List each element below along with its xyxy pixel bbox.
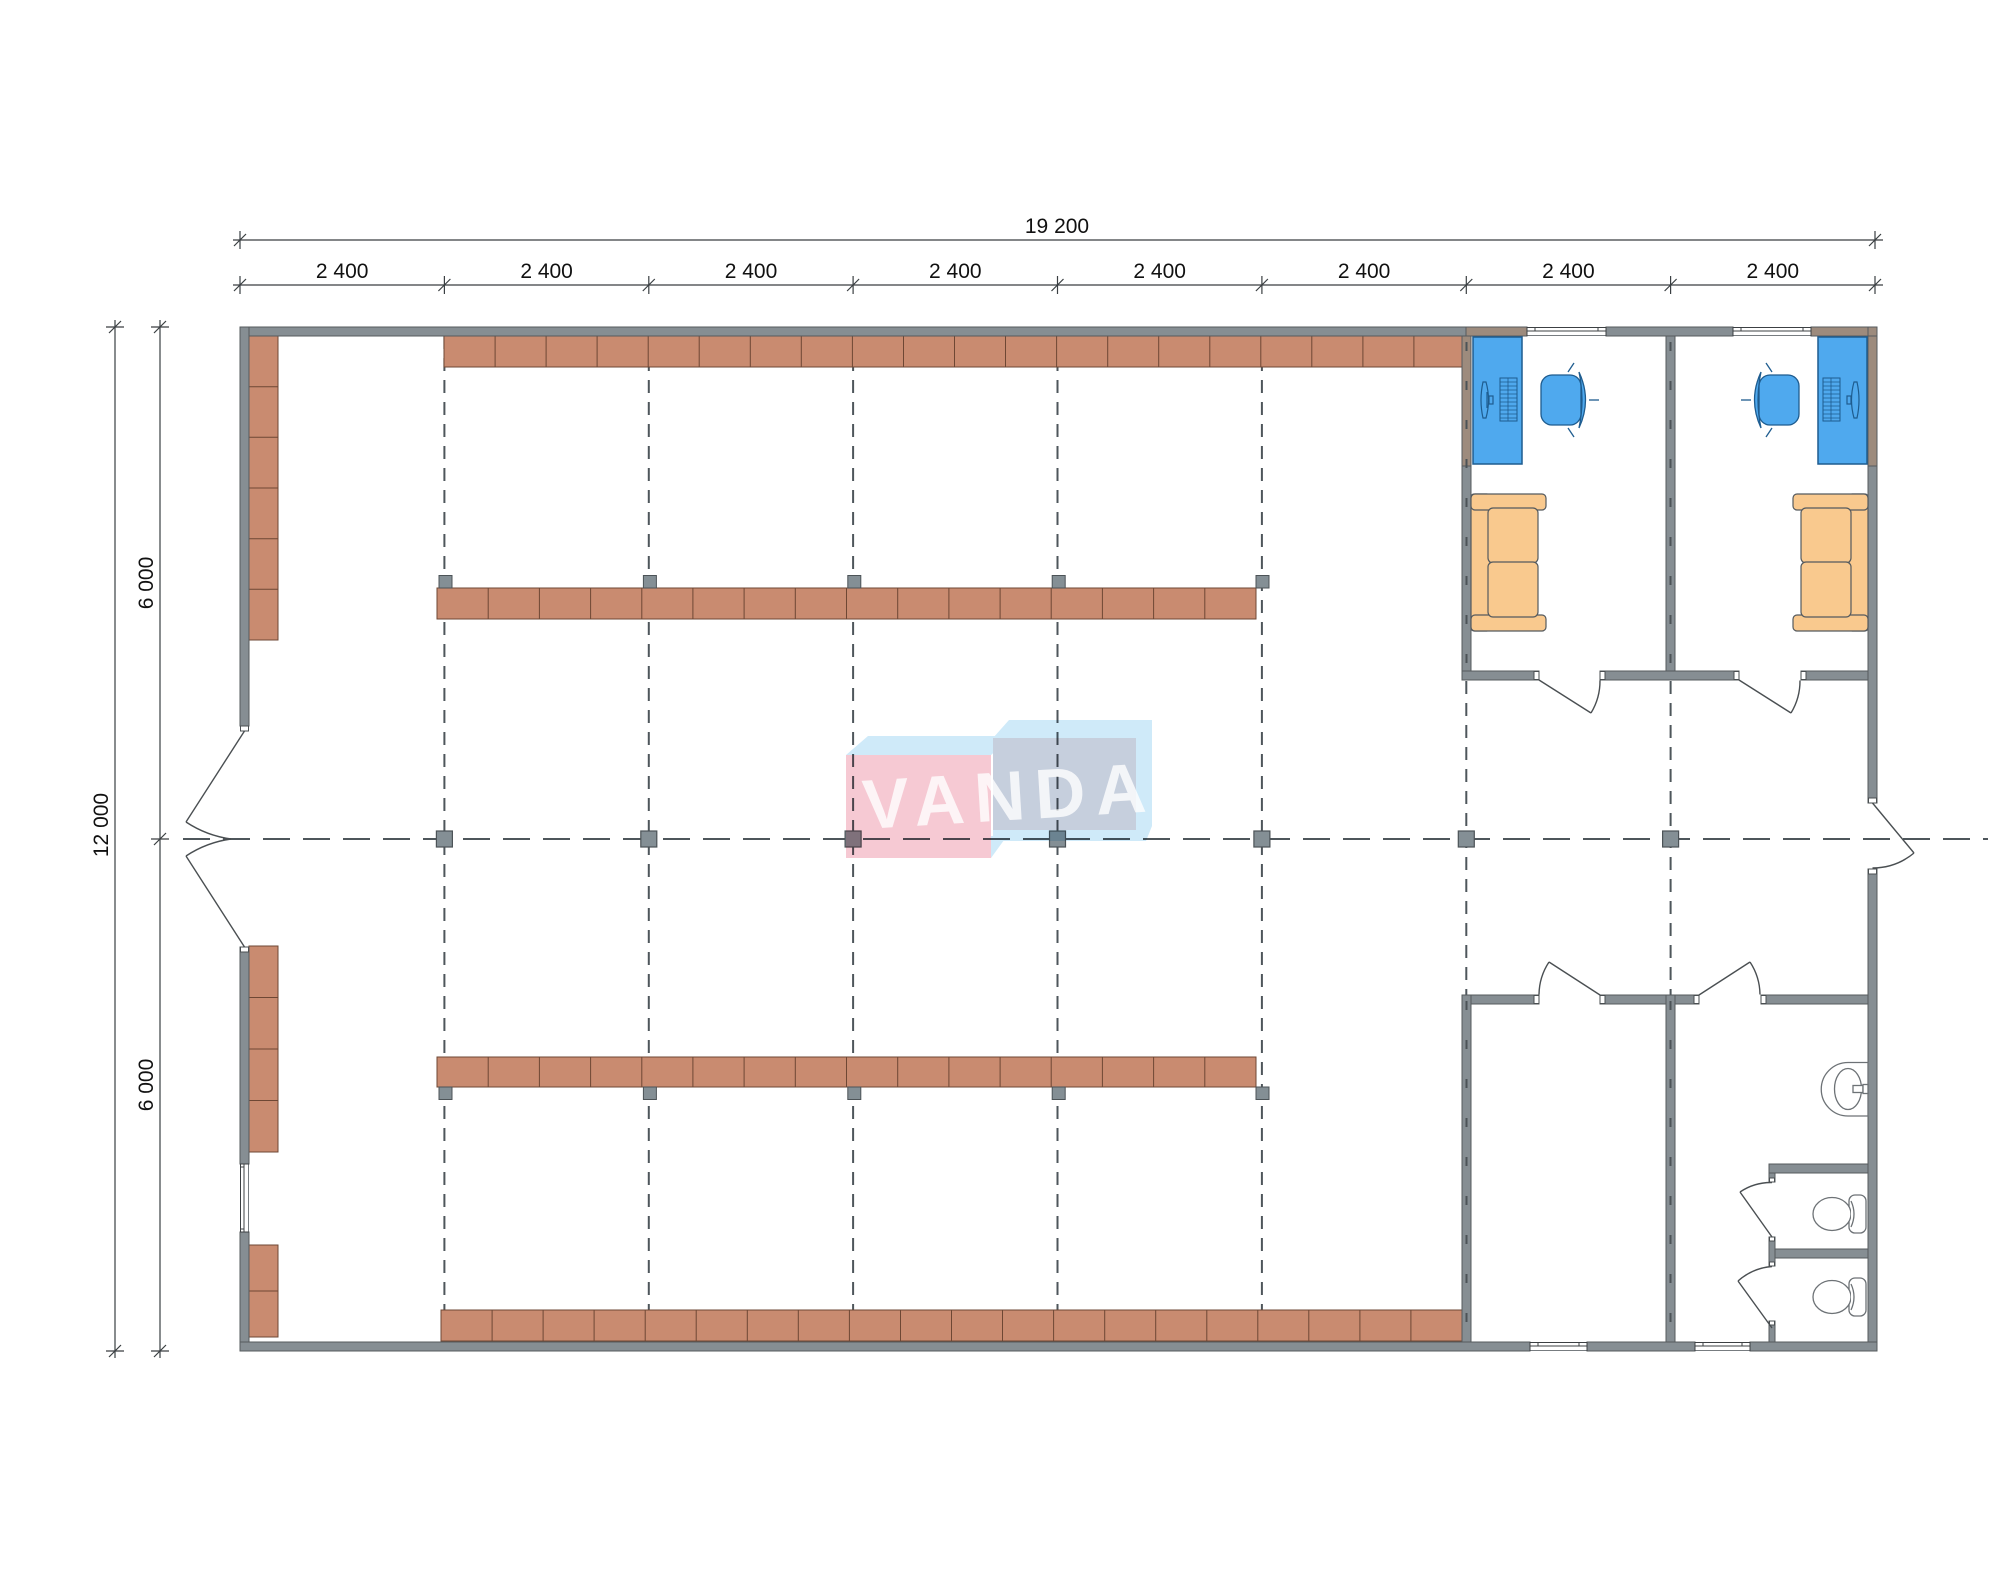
- svg-text:2 400: 2 400: [1542, 260, 1595, 283]
- svg-text:6 000: 6 000: [135, 557, 158, 610]
- svg-text:2 400: 2 400: [316, 260, 369, 283]
- svg-text:2 400: 2 400: [520, 260, 573, 283]
- svg-text:2 400: 2 400: [929, 260, 982, 283]
- svg-text:2 400: 2 400: [725, 260, 778, 283]
- svg-text:2 400: 2 400: [1338, 260, 1391, 283]
- svg-text:12 000: 12 000: [90, 793, 113, 857]
- svg-text:6 000: 6 000: [135, 1059, 158, 1112]
- svg-text:2 400: 2 400: [1747, 260, 1800, 283]
- svg-text:19 200: 19 200: [1025, 215, 1089, 238]
- svg-text:2 400: 2 400: [1133, 260, 1186, 283]
